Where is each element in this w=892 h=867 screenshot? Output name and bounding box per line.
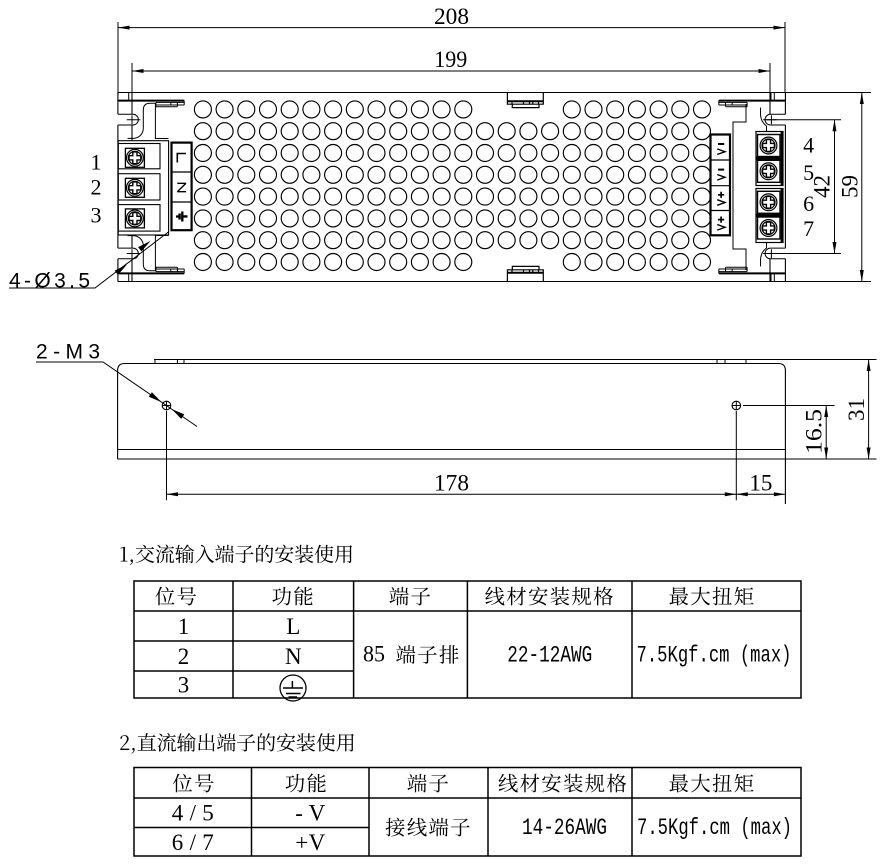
svg-text:178: 178 — [434, 471, 469, 496]
svg-text:16.5: 16.5 — [802, 409, 827, 454]
svg-text:7.5Kgf.cm (max): 7.5Kgf.cm (max) — [637, 815, 792, 841]
svg-text:7.5Kgf.cm (max): 7.5Kgf.cm (max) — [637, 643, 792, 669]
svg-text:L: L — [286, 614, 300, 639]
svg-text:14-26AWG: 14-26AWG — [522, 815, 607, 841]
svg-text:N: N — [285, 644, 302, 669]
svg-text:7: 7 — [803, 216, 814, 241]
svg-text:2: 2 — [91, 175, 102, 200]
svg-text:85: 85 — [363, 642, 385, 667]
svg-text:2: 2 — [178, 644, 190, 669]
svg-text:3: 3 — [91, 202, 102, 227]
svg-text:4/5: 4/5 — [172, 801, 214, 826]
svg-text:42: 42 — [810, 175, 835, 198]
svg-text:2-M3: 2-M3 — [36, 341, 100, 364]
svg-text:59: 59 — [838, 175, 863, 198]
svg-text:3: 3 — [178, 673, 190, 698]
svg-text:4-Ø3.5: 4-Ø3.5 — [9, 270, 90, 293]
svg-text:1: 1 — [91, 149, 102, 174]
svg-text:15: 15 — [749, 471, 772, 496]
svg-text:199: 199 — [434, 47, 467, 72]
svg-text:6/7: 6/7 — [172, 830, 214, 855]
svg-text:31: 31 — [844, 398, 869, 421]
svg-text:-V: -V — [295, 801, 325, 826]
svg-text:+V: +V — [295, 830, 325, 855]
svg-text:208: 208 — [434, 4, 469, 29]
svg-text:22-12AWG: 22-12AWG — [507, 643, 592, 669]
svg-text:1: 1 — [178, 614, 190, 639]
svg-text:4: 4 — [803, 132, 814, 157]
